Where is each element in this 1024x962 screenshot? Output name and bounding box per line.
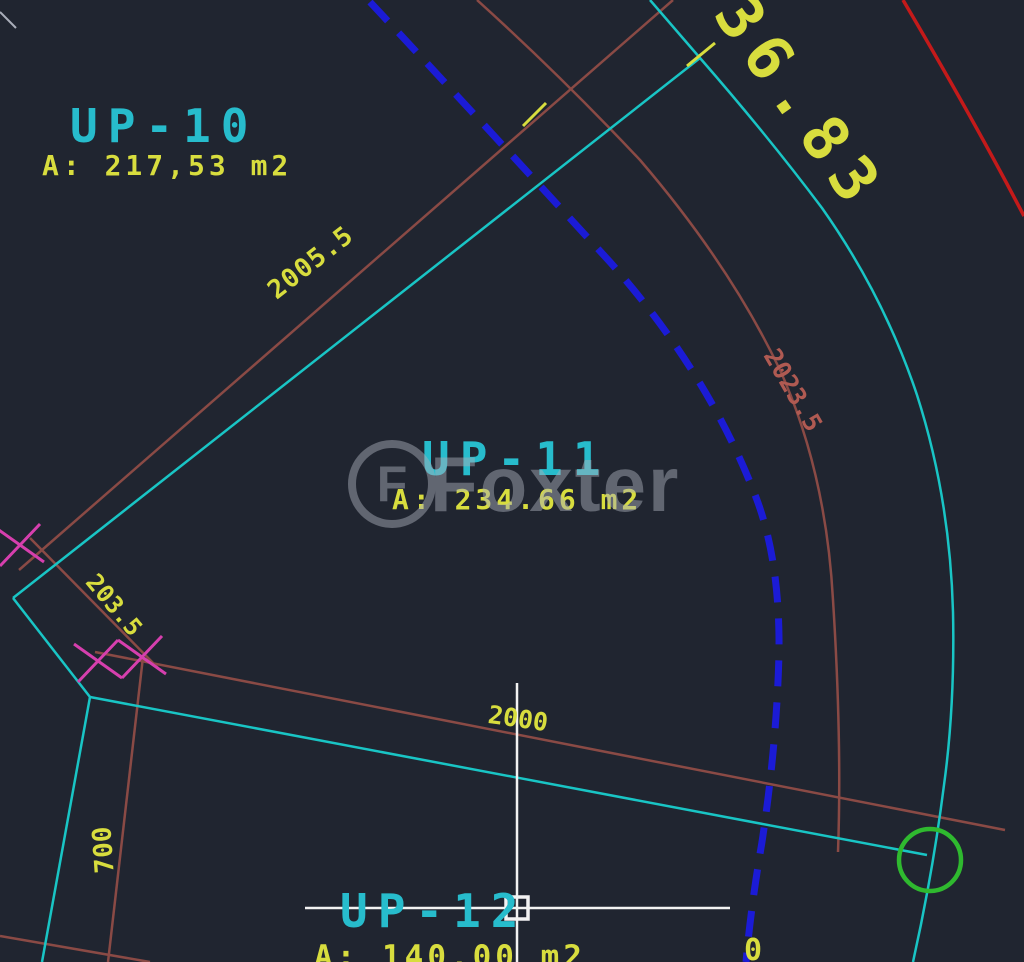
lot-label-up12: UP-12: [340, 888, 528, 934]
dimension-text-700: 700: [89, 826, 118, 875]
watermark-logo-ring: F: [348, 440, 436, 528]
cad-plot-map: UP-10 A: 217,53 m2 UP-11 A: 234.66 m2 UP…: [0, 0, 1024, 962]
partial-glyph: 0: [744, 936, 762, 962]
corner-tick: [0, 12, 16, 28]
street-arc-red: [903, 0, 1024, 216]
watermark-brand-text: Foxter: [430, 439, 680, 530]
area-label-up10: A: 217,53 m2: [42, 152, 292, 180]
dimension-text-2000: 2000: [487, 702, 550, 735]
area-label-up12: A: 140,00 m2: [314, 942, 586, 962]
lot-boundary-left-leg: [42, 697, 90, 962]
dimension-line-bottom-long: [95, 652, 1005, 830]
survey-x-marker: [74, 640, 122, 682]
lot-label-up10: UP-10: [70, 103, 258, 149]
watermark: F Foxter: [330, 425, 710, 555]
lot-line-bottom-left: [0, 936, 150, 962]
watermark-logo-letter: F: [377, 455, 408, 513]
